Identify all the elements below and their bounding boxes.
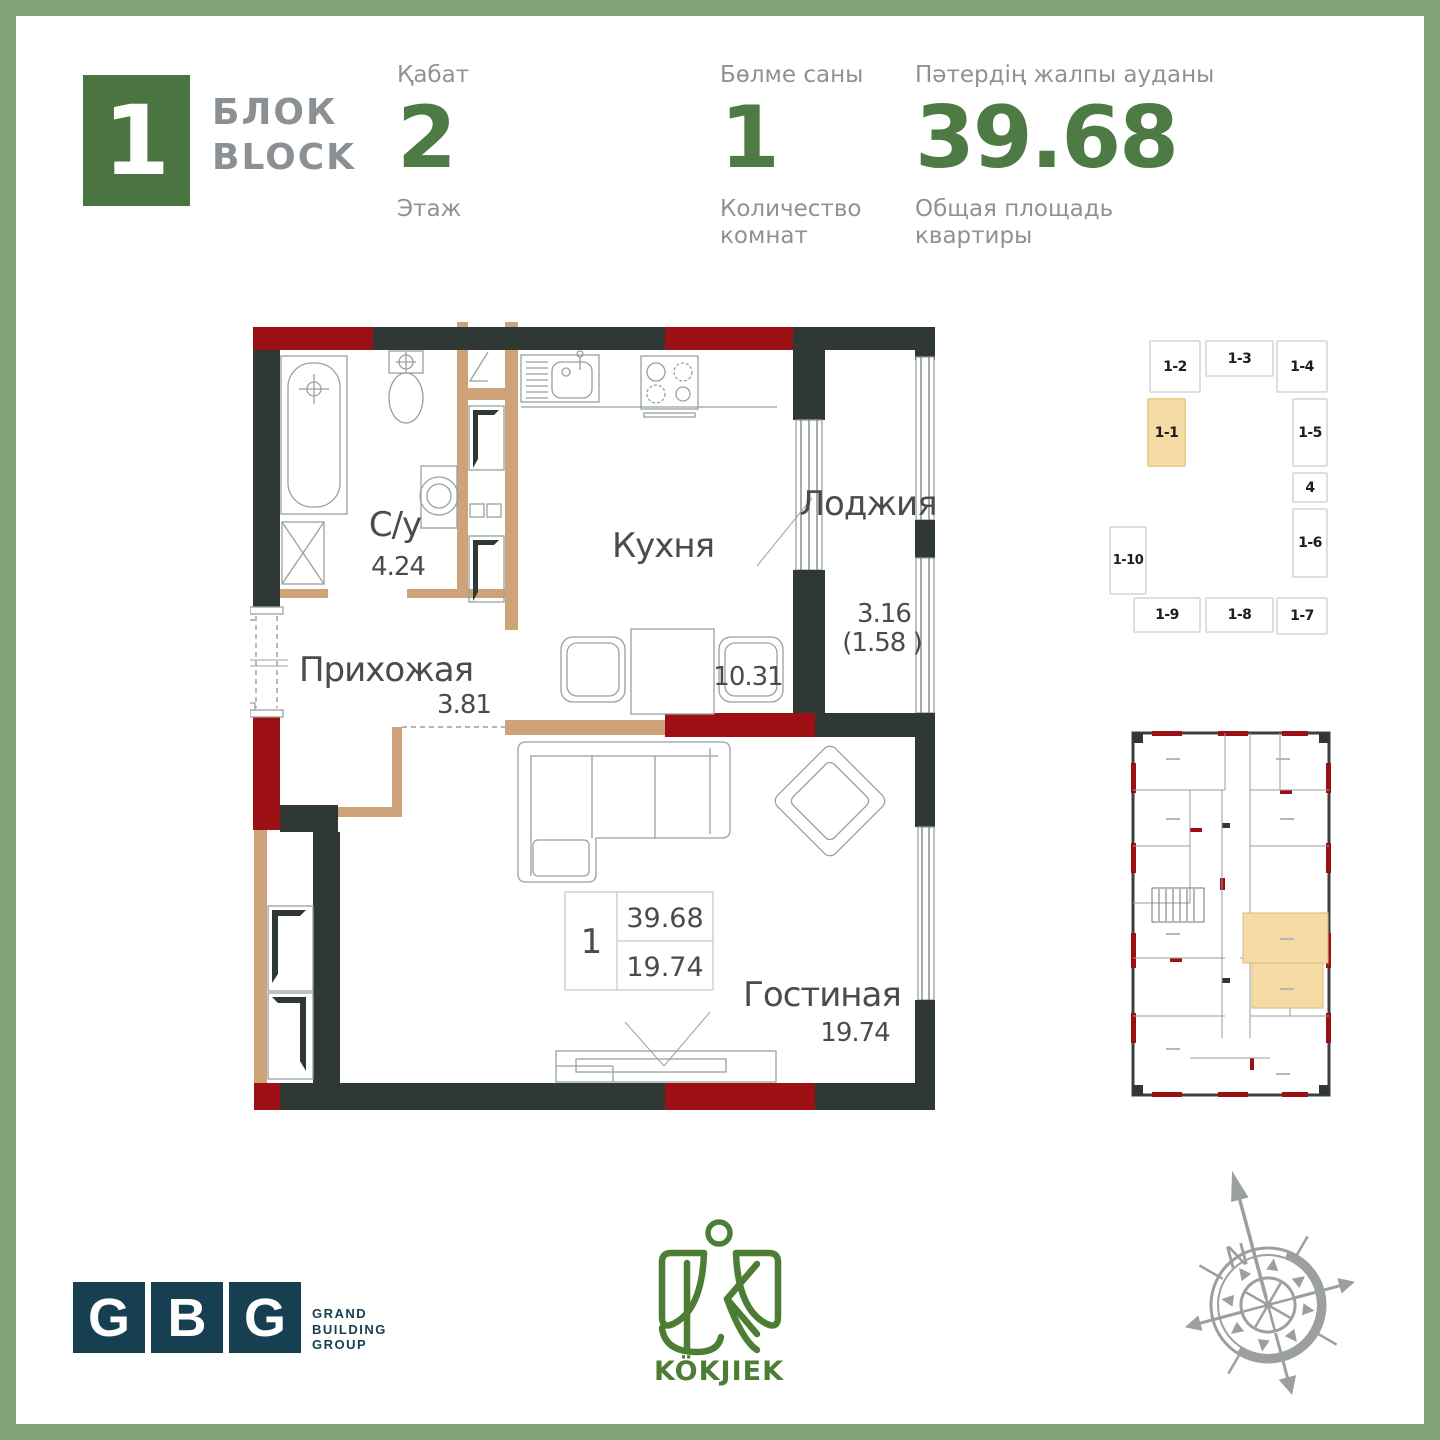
apartment-floor-plan: 1 39.68 19.74 С/у 4.24 Кухня 10.31 Лоджи… bbox=[250, 322, 940, 1114]
loggia-area: 3.16 bbox=[857, 599, 911, 629]
kitchen-area: 10.31 bbox=[713, 662, 782, 692]
rooms-value: 1 bbox=[720, 94, 778, 182]
compass-rose-icon: N bbox=[1180, 1158, 1365, 1408]
wardrobe-shaft bbox=[268, 906, 313, 1079]
gbg-caption: GRAND BUILDING GROUP bbox=[312, 1306, 387, 1353]
compass-north-label: N bbox=[1222, 1237, 1253, 1277]
block-number-badge: 1 bbox=[83, 75, 190, 206]
dining-table bbox=[631, 629, 714, 714]
living-area: 19.74 bbox=[820, 1018, 890, 1048]
area-label-ru: Общая площадь квартиры bbox=[915, 196, 1160, 250]
bathtub bbox=[281, 356, 347, 514]
shower-tray bbox=[282, 522, 324, 584]
washing-machine bbox=[420, 466, 458, 528]
armchair bbox=[772, 743, 888, 859]
bathroom-area: 4.24 bbox=[371, 552, 425, 582]
stamp-room-count: 1 bbox=[581, 922, 602, 962]
block-title-en: BLOCK bbox=[212, 135, 356, 180]
floor-label-kk: Қабат bbox=[397, 62, 469, 88]
kitchen-sink bbox=[521, 351, 599, 402]
stove bbox=[641, 356, 698, 417]
entry-door-leaf bbox=[250, 703, 255, 710]
floor-label-ru: Этаж bbox=[397, 196, 461, 223]
stamp-total-area: 39.68 bbox=[626, 903, 703, 934]
stamp-living-area: 19.74 bbox=[626, 952, 703, 983]
chair-left bbox=[561, 637, 625, 702]
loggia-area-reduced: (1.58 ) bbox=[842, 628, 921, 658]
living-label: Гостиная bbox=[743, 975, 901, 1015]
rooms-label-kk: Бөлме саны bbox=[720, 62, 863, 88]
unit-cell-1-9: 1-9 bbox=[1133, 597, 1201, 633]
unit-cell-4: 4 bbox=[1292, 472, 1328, 503]
loggia-label: Лоджия bbox=[799, 484, 936, 524]
gbg-letter-g2: G bbox=[229, 1282, 301, 1353]
unit-cell-1-4: 1-4 bbox=[1276, 340, 1328, 393]
unit-cell-1-6: 1-6 bbox=[1292, 508, 1328, 578]
block-number: 1 bbox=[103, 85, 170, 197]
building-floor-plan-thumbnail bbox=[1130, 728, 1334, 1100]
kitchen-label: Кухня bbox=[612, 526, 714, 566]
unit-cell-1-8: 1-8 bbox=[1205, 597, 1274, 633]
area-value: 39.68 bbox=[915, 94, 1177, 182]
tv-unit bbox=[556, 1051, 776, 1082]
gbg-letter-g1: G bbox=[73, 1282, 145, 1353]
gbg-letter-b: B bbox=[151, 1282, 223, 1353]
rooms-label-ru: Количество комнат bbox=[720, 196, 885, 250]
kokjiek-logo-icon bbox=[655, 1212, 785, 1357]
kokjiek-wordmark: KÖKJIEK bbox=[619, 1356, 819, 1387]
unit-cell-1-2: 1-2 bbox=[1149, 340, 1201, 393]
floor-value: 2 bbox=[397, 94, 455, 182]
bathroom-label: С/у bbox=[369, 505, 422, 545]
unit-cell-1-1-highlighted: 1-1 bbox=[1147, 398, 1186, 467]
sofa bbox=[518, 742, 730, 882]
area-label-kk: Пәтердің жалпы ауданы bbox=[915, 62, 1214, 88]
block-title: БЛОК BLOCK bbox=[212, 90, 356, 180]
unit-cell-1-5: 1-5 bbox=[1292, 398, 1328, 467]
unit-cell-1-10: 1-10 bbox=[1109, 526, 1147, 595]
hallway-area: 3.81 bbox=[437, 690, 491, 720]
unit-cell-1-7: 1-7 bbox=[1276, 597, 1328, 635]
hallway-label: Прихожая bbox=[299, 650, 473, 690]
toilet bbox=[389, 351, 423, 423]
living-window bbox=[918, 827, 934, 1000]
block-title-kk: БЛОК bbox=[212, 90, 356, 135]
area-stamp: 1 39.68 19.74 bbox=[565, 892, 713, 990]
unit-cell-1-3: 1-3 bbox=[1205, 340, 1274, 377]
